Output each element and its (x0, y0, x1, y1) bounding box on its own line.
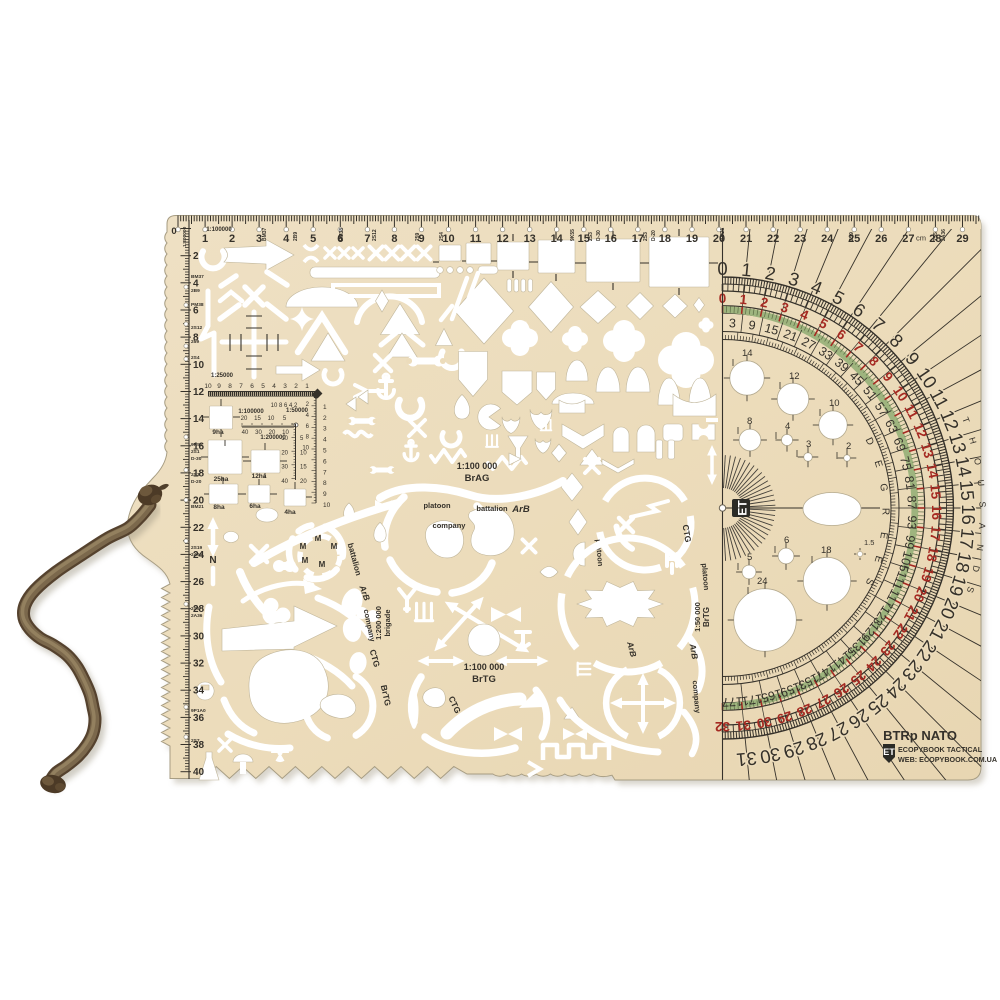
svg-text:2S9: 2S9 (849, 232, 855, 241)
svg-text:9K55: 9K55 (191, 442, 203, 448)
svg-text:ET: ET (883, 747, 895, 757)
svg-text:259: 259 (191, 339, 199, 345)
svg-text:20: 20 (241, 416, 248, 422)
svg-text:81: 81 (902, 475, 918, 491)
svg-text:2S12: 2S12 (372, 229, 378, 241)
svg-text:R: R (880, 508, 891, 515)
svg-text:WEB: ECOPYBOOK.COM.UA: WEB: ECOPYBOOK.COM.UA (898, 755, 997, 764)
svg-text:29: 29 (956, 233, 968, 245)
svg-text:2S7: 2S7 (191, 738, 200, 744)
svg-text:ECOPYBOOK TACTICAL: ECOPYBOOK TACTICAL (898, 745, 983, 754)
svg-text:N: N (209, 555, 216, 566)
svg-text:8: 8 (747, 416, 752, 427)
svg-text:7: 7 (323, 469, 327, 476)
svg-text:PM38: PM38 (191, 302, 204, 308)
svg-text:26: 26 (875, 233, 887, 245)
svg-text:25ha: 25ha (214, 476, 229, 483)
svg-text:3: 3 (806, 439, 811, 450)
svg-text:D-30: D-30 (596, 230, 602, 241)
svg-text:14: 14 (193, 414, 205, 425)
svg-text:4: 4 (323, 437, 327, 444)
svg-text:32: 32 (193, 659, 205, 670)
svg-text:2S12: 2S12 (191, 325, 203, 331)
svg-text:8ha: 8ha (213, 504, 225, 511)
svg-text:87: 87 (904, 495, 919, 510)
svg-text:BM21: BM21 (191, 504, 204, 510)
svg-text:D-20: D-20 (191, 479, 202, 485)
svg-text:4: 4 (785, 421, 790, 432)
svg-text:13: 13 (524, 233, 536, 245)
svg-text:40: 40 (281, 479, 288, 485)
svg-text:5: 5 (323, 448, 327, 455)
svg-text:2S3: 2S3 (191, 472, 200, 478)
svg-text:2: 2 (229, 233, 235, 245)
svg-text:1:200 000: 1:200 000 (374, 606, 383, 640)
svg-text:4: 4 (283, 233, 290, 245)
svg-text:19: 19 (686, 233, 698, 245)
svg-text:2A36: 2A36 (941, 229, 947, 241)
svg-text:31: 31 (735, 748, 758, 771)
svg-text:27: 27 (902, 233, 914, 245)
svg-text:1:100 000: 1:100 000 (464, 662, 505, 672)
svg-text:1: 1 (740, 259, 752, 281)
svg-text:1:25000: 1:25000 (211, 373, 234, 379)
svg-text:2S1: 2S1 (191, 449, 200, 455)
svg-text:2: 2 (294, 383, 298, 390)
svg-text:M: M (302, 556, 309, 565)
svg-text:6ha: 6ha (249, 503, 261, 510)
svg-text:22: 22 (767, 233, 779, 245)
svg-text:1: 1 (323, 404, 327, 411)
svg-text:10: 10 (300, 450, 307, 456)
svg-text:4ha: 4ha (284, 509, 296, 516)
svg-text:3: 3 (323, 426, 327, 433)
svg-text:11: 11 (470, 233, 482, 245)
svg-text:24: 24 (757, 576, 768, 587)
svg-text:14: 14 (742, 348, 753, 359)
svg-text:3: 3 (729, 316, 737, 330)
svg-text:18: 18 (659, 233, 671, 245)
svg-text:99: 99 (902, 534, 918, 550)
svg-text:2A36: 2A36 (191, 613, 203, 619)
svg-text:3: 3 (283, 383, 287, 390)
svg-text:9P1A0: 9P1A0 (191, 708, 206, 714)
svg-text:177: 177 (722, 694, 744, 709)
svg-text:1: 1 (202, 233, 208, 245)
svg-text:30: 30 (755, 714, 773, 732)
svg-text:5: 5 (261, 383, 265, 390)
svg-text:2S5: 2S5 (933, 232, 939, 241)
svg-text:6: 6 (784, 535, 789, 546)
svg-text:S: S (977, 501, 987, 507)
svg-text:PM38: PM38 (339, 228, 345, 241)
svg-text:company: company (433, 521, 467, 530)
svg-text:12: 12 (193, 387, 205, 398)
svg-text:7: 7 (239, 383, 243, 390)
svg-text:6: 6 (323, 458, 327, 465)
svg-text:22: 22 (193, 523, 205, 534)
svg-text:brigade: brigade (383, 609, 392, 636)
svg-text:2A65: 2A65 (191, 552, 203, 558)
svg-text:BM21: BM21 (720, 227, 726, 241)
svg-text:2: 2 (846, 441, 851, 452)
svg-text:12: 12 (496, 233, 508, 245)
svg-text:2B9: 2B9 (293, 232, 299, 241)
svg-text:10 8 6 4 2: 10 8 6 4 2 (271, 403, 298, 409)
svg-text:24: 24 (821, 233, 834, 245)
svg-text:30: 30 (758, 743, 782, 768)
svg-text:18: 18 (821, 545, 832, 556)
svg-text:30: 30 (281, 465, 288, 471)
svg-text:2: 2 (193, 251, 199, 262)
svg-text:M: M (300, 542, 307, 551)
svg-text:9ha: 9ha (212, 429, 224, 436)
svg-text:10: 10 (193, 360, 205, 371)
svg-text:1: 1 (305, 383, 309, 390)
svg-text:8: 8 (323, 480, 327, 487)
svg-text:BrAG: BrAG (465, 473, 490, 484)
svg-text:1:200000: 1:200000 (182, 226, 188, 247)
svg-text:1:50 000: 1:50 000 (693, 602, 702, 632)
svg-text:2: 2 (323, 415, 327, 422)
svg-text:ArB: ArB (511, 504, 530, 515)
svg-text:34: 34 (193, 686, 205, 697)
svg-text:12: 12 (789, 371, 800, 382)
svg-text:2S5: 2S5 (191, 606, 200, 612)
svg-text:0: 0 (171, 226, 176, 237)
svg-text:U: U (976, 479, 987, 487)
svg-text:4: 4 (272, 383, 276, 390)
svg-text:A: A (977, 523, 987, 530)
svg-text:ET: ET (736, 500, 750, 516)
svg-text:2S3: 2S3 (643, 232, 649, 241)
svg-text:30: 30 (193, 631, 205, 642)
svg-text:36: 36 (193, 713, 205, 724)
svg-text:9: 9 (217, 383, 221, 390)
svg-text:1:100 000: 1:100 000 (457, 461, 498, 471)
svg-text:platoon: platoon (423, 501, 450, 510)
svg-text:2S4: 2S4 (439, 232, 445, 241)
svg-text:93: 93 (904, 515, 919, 530)
svg-text:40: 40 (193, 767, 205, 778)
svg-text:9K55: 9K55 (570, 229, 576, 241)
svg-text:battalion: battalion (476, 504, 508, 513)
svg-text:23: 23 (794, 233, 806, 245)
svg-text:6: 6 (250, 383, 254, 390)
svg-text:15: 15 (254, 416, 261, 422)
svg-text:16: 16 (958, 504, 979, 525)
svg-text:17: 17 (927, 525, 943, 541)
svg-text:7: 7 (364, 233, 370, 245)
svg-text:10: 10 (281, 436, 288, 442)
svg-text:D-20: D-20 (651, 230, 657, 241)
svg-text:2S19: 2S19 (191, 545, 203, 551)
svg-text:2B9: 2B9 (191, 288, 200, 294)
svg-text:15: 15 (956, 479, 979, 502)
svg-text:2S4: 2S4 (191, 355, 200, 361)
svg-text:15: 15 (300, 465, 307, 471)
svg-text:M: M (319, 560, 326, 569)
svg-text:cm: cm (916, 234, 926, 243)
svg-text:259: 259 (415, 232, 421, 241)
svg-text:12ha: 12ha (252, 473, 267, 480)
svg-text:BrTG: BrTG (702, 607, 711, 627)
svg-text:26: 26 (193, 577, 205, 588)
svg-text:20: 20 (281, 450, 288, 456)
svg-text:10: 10 (829, 398, 840, 409)
svg-text:BM37: BM37 (191, 274, 204, 280)
svg-text:20: 20 (300, 479, 307, 485)
svg-text:BrTG: BrTG (472, 674, 496, 685)
svg-text:1:100000: 1:100000 (206, 227, 232, 233)
svg-text:10: 10 (268, 416, 275, 422)
svg-text:15: 15 (927, 483, 943, 500)
svg-text:BTRp NATO: BTRp NATO (883, 728, 957, 743)
svg-text:1:100000: 1:100000 (238, 409, 264, 415)
svg-text:M: M (331, 542, 338, 551)
svg-text:9: 9 (323, 491, 327, 498)
svg-text:10: 10 (204, 383, 212, 390)
svg-text:8: 8 (228, 383, 232, 390)
svg-text:10: 10 (323, 502, 331, 509)
svg-text:16: 16 (605, 233, 617, 245)
svg-text:N: N (975, 544, 986, 552)
svg-text:31: 31 (735, 717, 752, 733)
svg-text:D-30: D-30 (191, 456, 202, 462)
svg-text:40: 40 (242, 430, 249, 436)
svg-text:1.5: 1.5 (864, 538, 874, 547)
svg-text:5: 5 (310, 233, 316, 245)
svg-text:14: 14 (551, 233, 564, 245)
svg-text:BM37: BM37 (262, 227, 268, 241)
svg-text:21: 21 (740, 233, 752, 245)
svg-text:16: 16 (929, 505, 944, 521)
svg-text:5: 5 (747, 552, 752, 563)
svg-text:8: 8 (391, 233, 397, 245)
svg-text:2S3: 2S3 (588, 232, 594, 241)
